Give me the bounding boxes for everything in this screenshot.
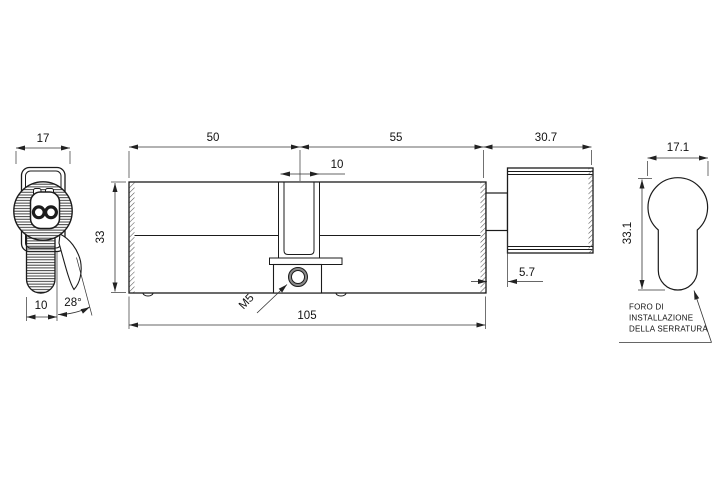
front-ring-left	[33, 207, 44, 218]
note-line-2: INSTALLAZIONE	[629, 314, 693, 323]
front-ring-right	[46, 207, 57, 218]
thumbturn-neck	[486, 193, 508, 231]
dim-front-knob-diameter: 17	[37, 133, 50, 145]
end-view: 17.1 33.1 FORO DI INSTALLAZIONE DELLA SE…	[619, 142, 712, 343]
cylinder-lock-drawing: 17 10 28°	[0, 0, 720, 478]
dim-total-length: 105	[297, 310, 316, 322]
knob-knurl-edge	[589, 169, 594, 253]
dim-thread-label: M5	[237, 292, 257, 312]
dim-body-height: 33	[95, 231, 107, 244]
note-line-1: FORO DI	[629, 303, 664, 312]
thumbturn-knob	[508, 168, 594, 253]
dim-cam-slot-width: 10	[331, 159, 344, 171]
body-right-knurl-edge	[481, 183, 486, 293]
dim-front-lever-angle: 28°	[64, 297, 81, 309]
note-line-3: DELLA SERRATURA	[629, 325, 708, 334]
dim-left-length: 50	[207, 132, 220, 144]
front-view: 17 10 28°	[14, 133, 92, 321]
dim-thumbturn-length: 30.7	[535, 132, 557, 144]
dim-hole-height: 33.1	[622, 222, 634, 244]
body-left-knurl-edge	[130, 183, 135, 293]
technical-drawing-canvas: 17 10 28°	[0, 0, 720, 478]
dim-front-stem-width: 10	[35, 300, 48, 312]
dim-hole-width: 17.1	[667, 142, 689, 154]
dim-right-length: 55	[390, 132, 403, 144]
cam-disc-edge	[270, 258, 343, 265]
side-view: 50 55 30.7 10 33 105 5.7 M5	[95, 132, 593, 329]
dim-neck-length: 5.7	[519, 267, 535, 279]
euro-profile-hole	[648, 178, 708, 290]
